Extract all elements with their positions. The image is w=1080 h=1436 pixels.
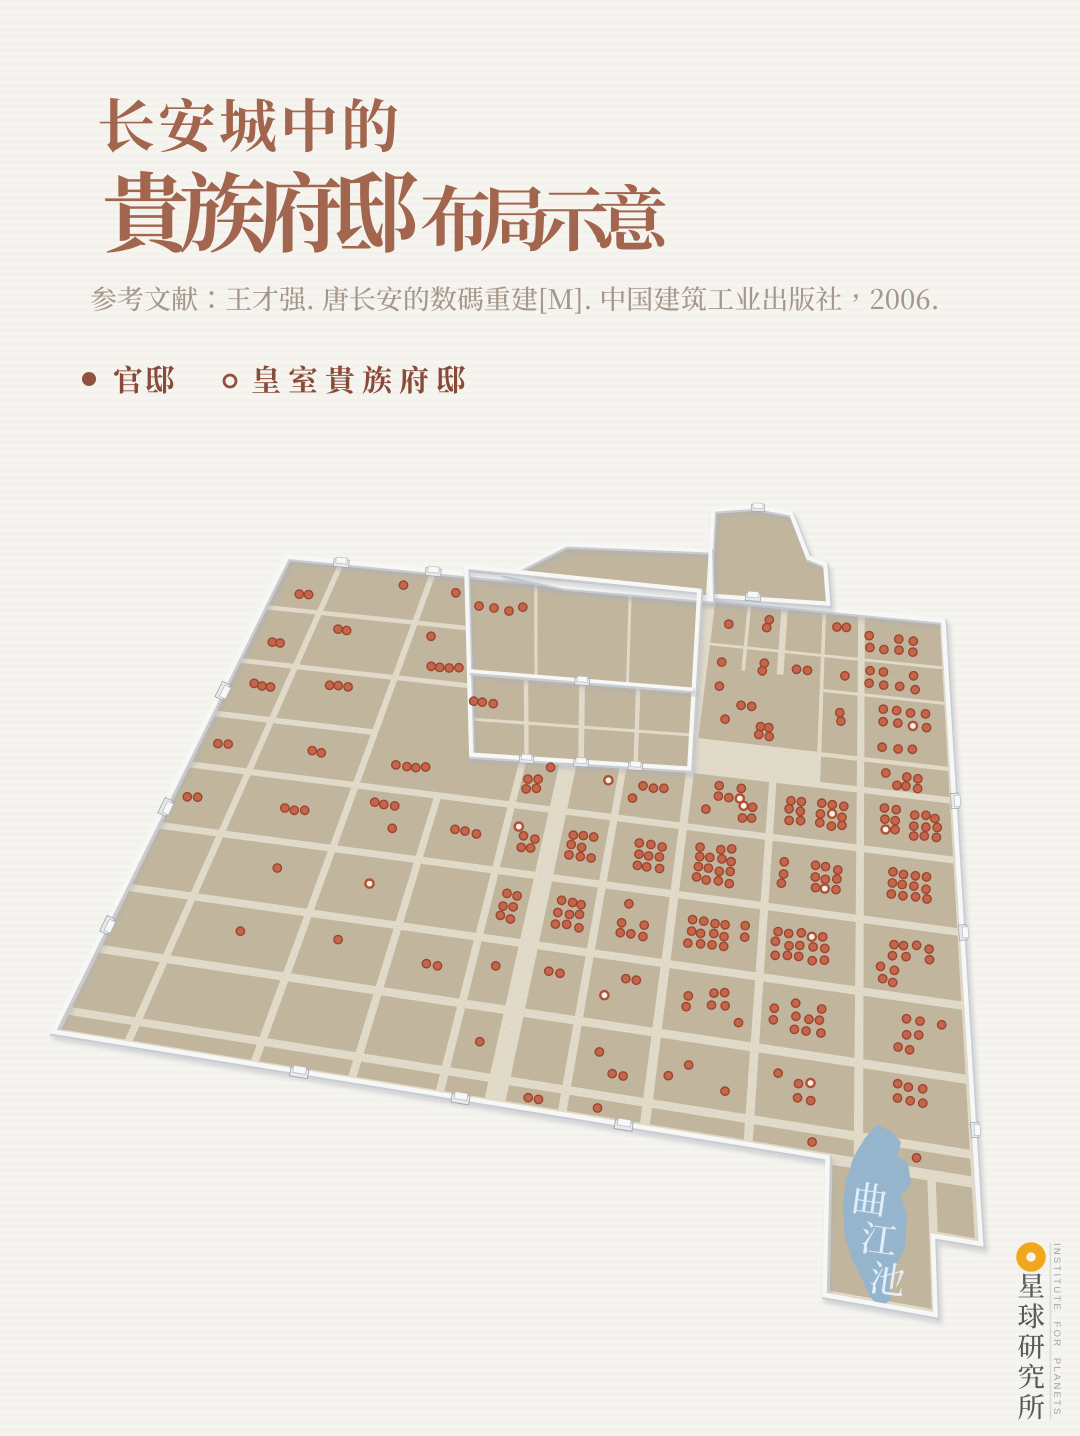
svg-text:INSTITUTE FOR PLANETS: INSTITUTE FOR PLANETS	[1051, 1243, 1062, 1417]
